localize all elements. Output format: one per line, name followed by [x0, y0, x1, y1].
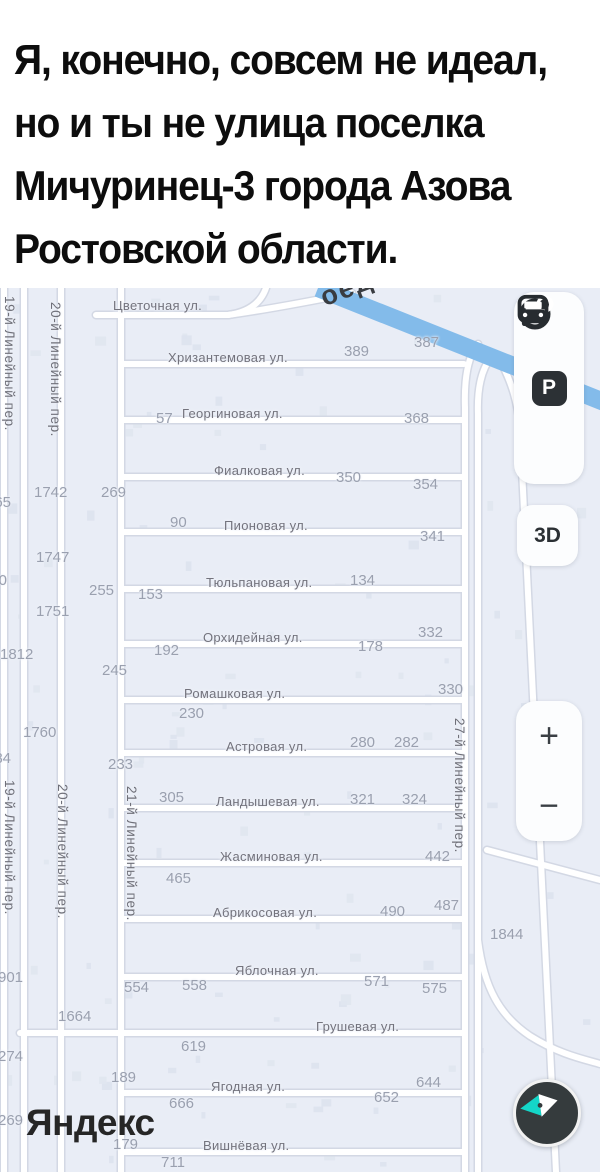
zoom-in-button[interactable]: + — [516, 701, 582, 771]
view-3d-label: 3D — [534, 524, 561, 548]
transit-button[interactable] — [527, 428, 571, 472]
zoom-panel: + − — [516, 701, 582, 841]
meme-caption: Я, конечно, совсем не идеал,но и ты не у… — [0, 0, 600, 288]
view-3d-button[interactable]: 3D — [517, 505, 578, 566]
zoom-out-button[interactable]: − — [516, 771, 582, 841]
meme-page: Я, конечно, совсем не идеал,но и ты не у… — [0, 0, 600, 1172]
navigator-arrow-icon — [516, 1082, 562, 1128]
bus-icon — [514, 292, 552, 330]
caption-line: Я, конечно, совсем не идеал, — [14, 28, 552, 91]
parking-icon: P — [532, 371, 567, 406]
parking-button[interactable]: P — [527, 366, 571, 410]
caption-line: но и ты не улица поселка — [14, 91, 552, 154]
yandex-map-canvas[interactable]: Цветочная ул.Хризантемовая ул.Георгинова… — [0, 288, 600, 1172]
map-tools-panel: P — [514, 292, 584, 484]
navigator-button[interactable] — [513, 1079, 581, 1147]
caption-line: Мичуринец-3 города Азова — [14, 154, 552, 217]
map-roads-layer — [0, 288, 600, 1172]
caption-line: Ростовской области. — [14, 217, 552, 280]
